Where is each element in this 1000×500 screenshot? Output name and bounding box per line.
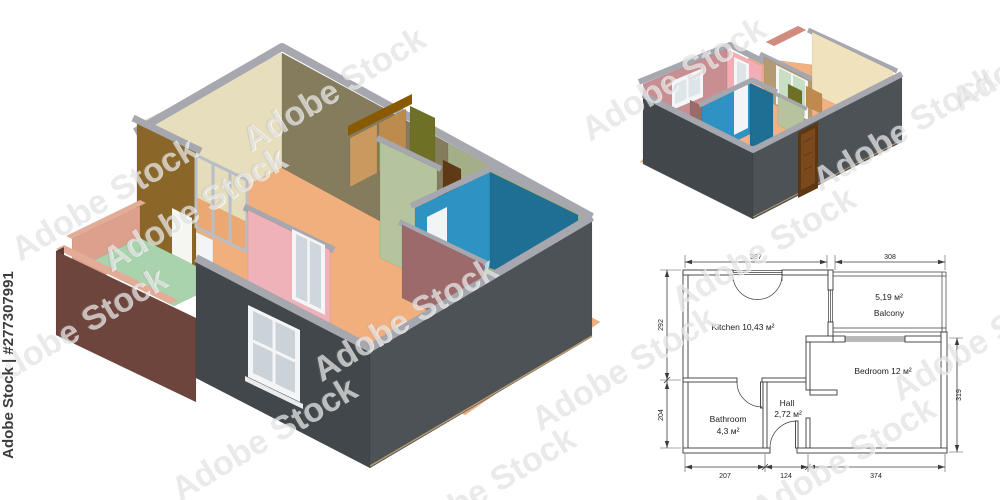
wall-right: [941, 332, 947, 453]
plan-room-labels: Kitchen 10,43 м² 5,19 м² Balcony Bedroom…: [710, 292, 912, 436]
watermark-attribution: Adobe Stock | #277307991: [0, 230, 34, 500]
bathroom-dark-blue: [750, 83, 773, 147]
kitchen-bottom-1: [683, 378, 737, 382]
label-hall-area: 2,72 м²: [774, 409, 802, 419]
dim-bedroom-width: 374: [870, 473, 882, 480]
apartment-interior: [56, 47, 600, 468]
label-bedroom: Bedroom 12 м²: [854, 366, 912, 376]
dim-bathroom-width: 207: [719, 473, 731, 480]
bedroom-west-2: [806, 418, 810, 448]
kitchen-bottom-2: [762, 378, 806, 382]
wall-top-2: [782, 270, 828, 275]
entry-door-symbol: [770, 421, 798, 448]
kitchen-window-symbol: [733, 271, 782, 275]
bath-hall-divider: [763, 382, 767, 448]
wall-left: [683, 270, 688, 453]
isometric-apartment-large: [55, 10, 615, 490]
label-bathroom-area: 4,3 м²: [717, 426, 740, 436]
dim-balcony-width: 308: [884, 254, 896, 261]
bedroom-top-jog: [806, 336, 833, 342]
bedroom-top-1: [833, 336, 845, 342]
isometric-apartment-small: [630, 12, 915, 227]
label-hall-name: Hall: [780, 398, 795, 408]
label-balcony-area: 5,19 м²: [875, 292, 903, 302]
label-bathroom-name: Bathroom: [710, 414, 747, 424]
bedroom-top-2: [905, 336, 941, 342]
label-balcony-name: Balcony: [874, 308, 905, 318]
wall-bottom-1: [683, 448, 770, 453]
bedroom-door-leaf: [810, 390, 837, 395]
apartment-small: [639, 26, 902, 219]
balcony-sliver-salmon: [766, 26, 806, 46]
entry-door: [798, 122, 818, 198]
dim-kitchen-depth: 292: [658, 319, 665, 331]
floor-plan-2d: 387 308 292 204 207 124 374 319 Kitchen …: [655, 250, 1000, 495]
watermark-tile: Adobe Stock: [945, 0, 1000, 120]
kitchen-door-symbol: [733, 275, 782, 300]
plan-dimensions: 387 308 292 204 207 124 374 319: [658, 254, 963, 480]
bathroom-door-white-small: [734, 84, 748, 135]
wall-top-1: [683, 270, 733, 275]
dim-hall-width: 124: [780, 473, 792, 480]
balcony-walls: [833, 272, 946, 332]
stock-image-canvas: 387 308 292 204 207 124 374 319 Kitchen …: [0, 0, 1000, 500]
dim-bedroom-depth: 319: [956, 389, 963, 401]
wall-bottom-2: [797, 448, 947, 453]
dim-kitchen-width: 387: [750, 254, 762, 261]
dim-bathroom-depth: 204: [658, 409, 665, 421]
divider-upper: [828, 270, 833, 290]
bedroom-west-1: [806, 342, 810, 390]
label-kitchen: Kitchen 10,43 м²: [711, 322, 774, 332]
bathroom-door-symbol: [737, 382, 763, 408]
